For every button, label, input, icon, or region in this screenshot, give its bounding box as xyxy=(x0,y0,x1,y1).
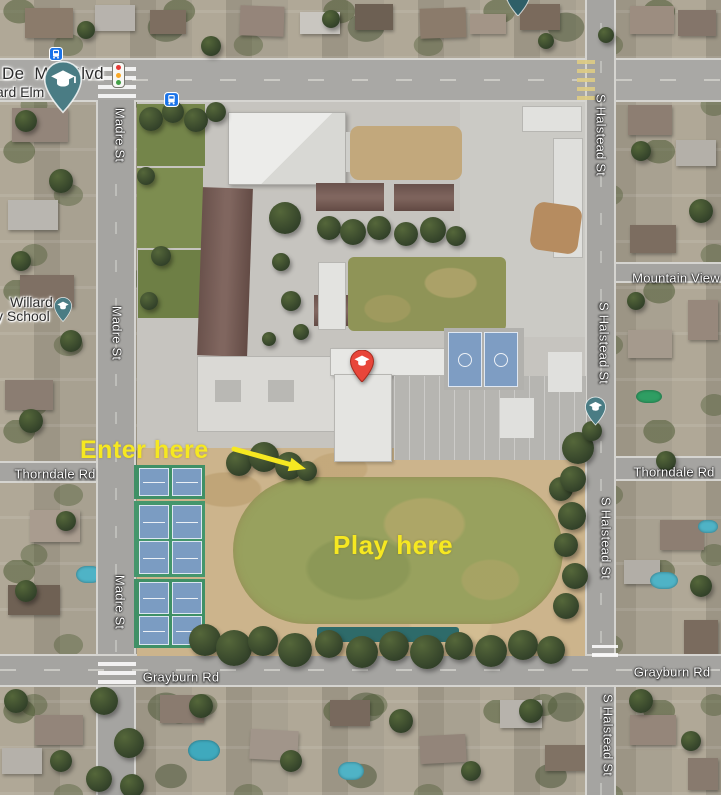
tree xyxy=(11,251,31,271)
road-label-s-halstead-st: S Halstead St xyxy=(594,94,609,176)
tree xyxy=(293,324,309,340)
tree xyxy=(189,694,213,718)
tree xyxy=(4,689,28,713)
road-label-grayburn-rd: Grayburn Rd xyxy=(634,665,711,680)
traffic-light-red xyxy=(116,65,121,70)
tree xyxy=(77,21,95,39)
tree xyxy=(508,630,538,660)
tree xyxy=(631,141,651,161)
tree xyxy=(201,36,221,56)
tree xyxy=(598,27,614,43)
road-label-s-halstead-st: S Halstead St xyxy=(601,694,616,776)
tree xyxy=(139,107,163,131)
tree xyxy=(262,332,276,346)
tree xyxy=(206,102,226,122)
tree xyxy=(537,636,565,664)
tree xyxy=(184,108,208,132)
enter-here-arrow xyxy=(230,443,310,475)
school-pin-willard[interactable] xyxy=(54,294,72,325)
tree xyxy=(446,226,466,246)
tree xyxy=(475,635,507,667)
tree xyxy=(560,466,586,492)
tree xyxy=(627,292,645,310)
tree xyxy=(690,575,712,597)
tree xyxy=(346,636,378,668)
tree xyxy=(445,632,473,660)
tree xyxy=(322,10,340,28)
road-label-s-halstead-st: S Halstead St xyxy=(597,302,612,384)
tree xyxy=(90,687,118,715)
tree xyxy=(137,167,155,185)
satellite-map[interactable]: De Mar Blvd ard Elm Willard y School Mad… xyxy=(0,0,721,795)
tree xyxy=(151,246,171,266)
tree xyxy=(689,199,713,223)
enter-here-annotation: Enter here xyxy=(80,436,209,465)
tree xyxy=(49,169,73,193)
tree xyxy=(281,291,301,311)
tree xyxy=(367,216,391,240)
tree xyxy=(389,709,413,733)
tree xyxy=(278,633,312,667)
tree xyxy=(315,630,343,658)
place-label-willard-school: y School xyxy=(0,308,50,324)
tree xyxy=(15,110,37,132)
road-label-thorndale-rd: Thorndale Rd xyxy=(633,465,714,480)
road-label-grayburn-rd: Grayburn Rd xyxy=(143,670,220,685)
tree xyxy=(681,731,701,751)
school-pin-willard-top[interactable] xyxy=(44,55,82,119)
tree xyxy=(394,222,418,246)
tree xyxy=(269,202,301,234)
tree xyxy=(120,774,144,795)
tree xyxy=(280,750,302,772)
traffic-light-icon xyxy=(112,62,125,88)
road-label-thorndale-rd: Thorndale Rd xyxy=(14,467,95,482)
road-label-madre-st: Madre St xyxy=(113,108,128,162)
tree xyxy=(558,502,586,530)
tree xyxy=(50,750,72,772)
tree xyxy=(15,580,37,602)
tree xyxy=(114,728,144,758)
school-pin-top-cut[interactable] xyxy=(505,0,531,16)
tree xyxy=(420,217,446,243)
tree xyxy=(272,253,290,271)
tree xyxy=(60,330,82,352)
tree xyxy=(554,533,578,557)
tree xyxy=(410,635,444,669)
tree xyxy=(379,631,409,661)
road-label-s-halstead-st: S Halstead St xyxy=(599,497,614,579)
tree xyxy=(56,511,76,531)
tree-layer xyxy=(0,0,721,795)
tree xyxy=(19,409,43,433)
school-pin-halstead[interactable] xyxy=(585,396,606,426)
play-here-annotation: Play here xyxy=(333,530,453,561)
tree xyxy=(553,593,579,619)
place-label-willard-elm: ard Elm xyxy=(0,84,44,100)
tree xyxy=(629,689,653,713)
traffic-light-green xyxy=(116,80,121,85)
tree xyxy=(519,699,543,723)
tree xyxy=(538,33,554,49)
road-label-madre-st: Madre St xyxy=(110,306,125,360)
road-label-madre-st: Madre St xyxy=(113,575,128,629)
bus-stop-icon[interactable] xyxy=(164,92,179,107)
tree xyxy=(340,219,366,245)
tree xyxy=(248,626,278,656)
bus-stop-icon[interactable] xyxy=(49,47,63,61)
tree xyxy=(461,761,481,781)
tree xyxy=(216,630,252,666)
traffic-light-yellow xyxy=(116,73,121,78)
tree xyxy=(140,292,158,310)
wilson-school-pin[interactable] xyxy=(350,350,374,382)
tree xyxy=(86,766,112,792)
road-label-mountain-view: Mountain View xyxy=(632,271,720,286)
tree xyxy=(317,216,341,240)
tree xyxy=(562,563,588,589)
